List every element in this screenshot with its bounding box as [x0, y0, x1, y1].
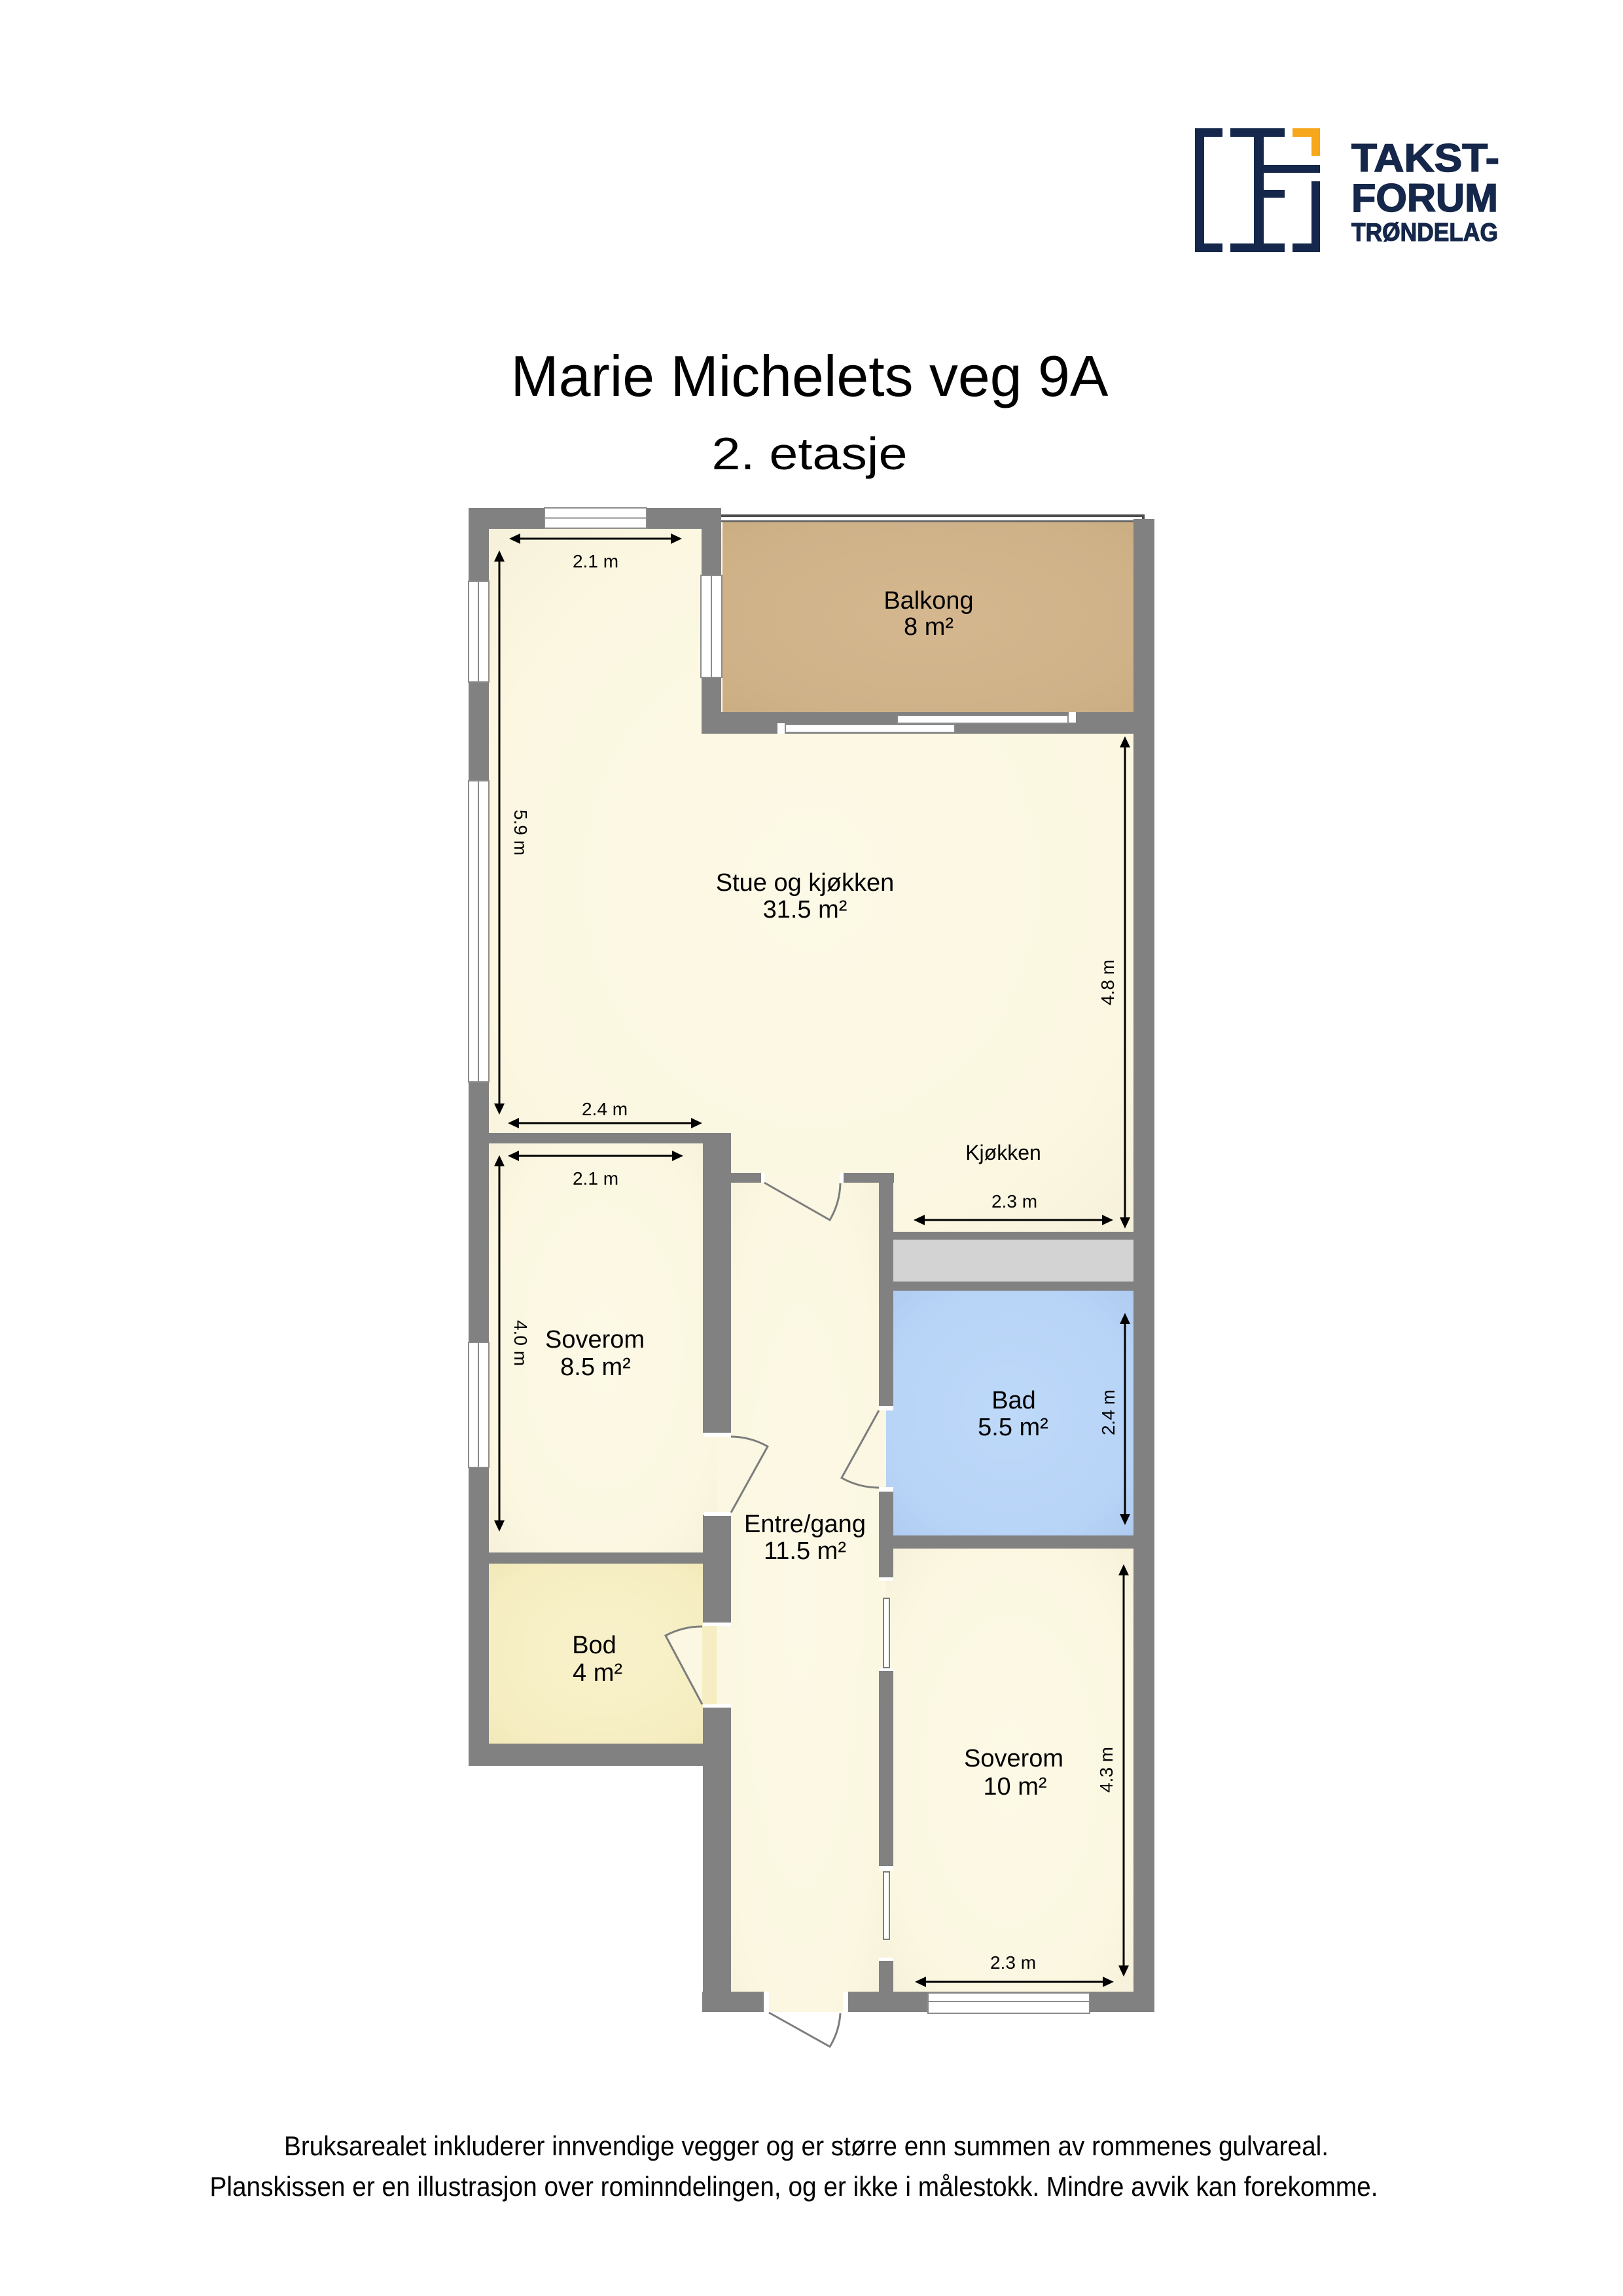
svg-text:Marie Michelets veg 9A: Marie Michelets veg 9A: [511, 344, 1109, 408]
svg-text:4.8 m: 4.8 m: [1097, 960, 1118, 1005]
svg-text:FORUM: FORUM: [1351, 176, 1498, 220]
svg-text:31.5 m²: 31.5 m²: [763, 896, 847, 924]
svg-text:2. etasje: 2. etasje: [712, 428, 908, 479]
svg-text:2.1 m: 2.1 m: [573, 551, 618, 571]
svg-text:2.4 m: 2.4 m: [1098, 1390, 1118, 1435]
svg-text:2.1 m: 2.1 m: [573, 1168, 618, 1189]
svg-text:8.5 m²: 8.5 m²: [560, 1354, 631, 1381]
svg-text:Planskissen er en illustrasjon: Planskissen er en illustrasjon over romi…: [210, 2171, 1378, 2202]
svg-text:11.5 m²: 11.5 m²: [764, 1537, 846, 1565]
svg-text:2.4 m: 2.4 m: [582, 1099, 628, 1119]
svg-text:2.3 m: 2.3 m: [990, 1952, 1036, 1973]
svg-text:Bruksarealet inkluderer innven: Bruksarealet inkluderer innvendige vegge…: [284, 2130, 1329, 2161]
svg-text:4.3 m: 4.3 m: [1096, 1747, 1116, 1793]
svg-text:2.3 m: 2.3 m: [991, 1191, 1037, 1211]
svg-text:TAKST-: TAKST-: [1351, 136, 1499, 180]
svg-text:8 m²: 8 m²: [904, 613, 954, 641]
svg-text:Entre/gang: Entre/gang: [744, 1511, 866, 1538]
svg-text:Kjøkken: Kjøkken: [965, 1141, 1041, 1164]
svg-text:Stue og kjøkken: Stue og kjøkken: [716, 869, 894, 897]
svg-text:Soverom: Soverom: [964, 1745, 1063, 1772]
svg-text:4 m²: 4 m²: [573, 1659, 622, 1687]
svg-text:10 m²: 10 m²: [983, 1773, 1046, 1801]
svg-text:4.0 m: 4.0 m: [510, 1320, 531, 1366]
svg-text:5.9 m: 5.9 m: [510, 810, 531, 855]
svg-text:TRØNDELAG: TRØNDELAG: [1351, 219, 1498, 247]
svg-text:Bod: Bod: [572, 1632, 616, 1659]
svg-text:Balkong: Balkong: [883, 587, 973, 615]
svg-text:5.5 m²: 5.5 m²: [978, 1414, 1048, 1441]
svg-text:Bad: Bad: [991, 1387, 1036, 1414]
svg-text:Soverom: Soverom: [545, 1326, 645, 1354]
